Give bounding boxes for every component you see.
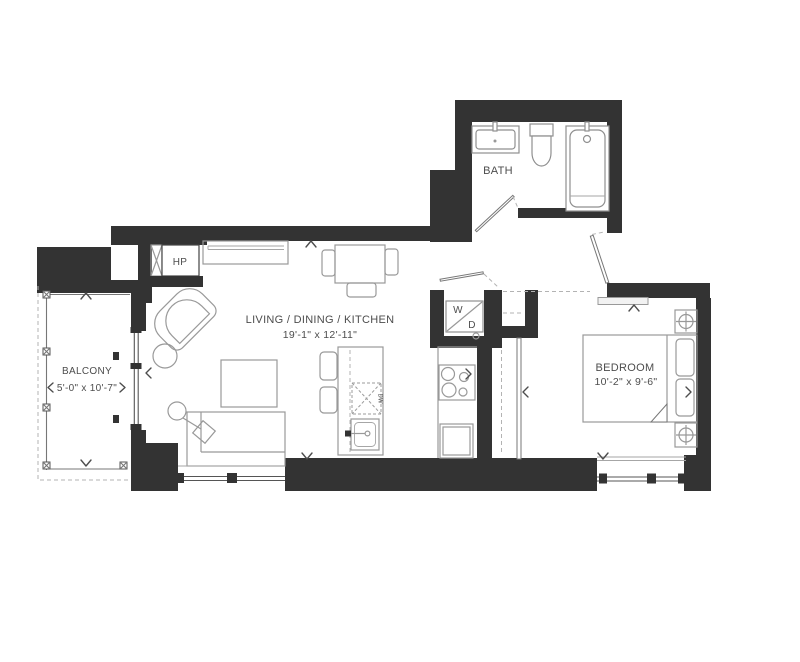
chevron-down-icon <box>598 453 608 459</box>
chevron-up-icon <box>81 293 91 299</box>
floor-lamp <box>168 402 186 420</box>
dim-arrow-right-icon <box>120 383 125 392</box>
balcony-dims: 5'-0" x 10'-7" <box>57 383 117 394</box>
tub-drain <box>584 136 591 143</box>
chevron-up-icon <box>306 241 316 247</box>
refrigerator-inner <box>443 427 470 455</box>
side-table <box>153 344 177 368</box>
bath-door <box>475 195 514 231</box>
wall-balcony-strip <box>111 280 138 293</box>
entry-door <box>590 235 609 283</box>
pillow <box>676 339 694 376</box>
kitchen <box>320 347 477 458</box>
sliding-panel <box>598 298 648 305</box>
wall-corner-southwest <box>131 443 178 491</box>
floor-plan-drawing: LIVING / DINING / KITCHEN 19'-1" x 12'-1… <box>0 0 800 662</box>
kitchen-counter <box>438 347 477 458</box>
vanity-faucet-icon <box>493 122 497 131</box>
wall-bedroom-east <box>696 298 711 491</box>
wall-kitchen-east <box>477 345 492 467</box>
wall-west-lower <box>131 430 146 444</box>
chevron-down-icon <box>81 460 91 466</box>
balcony-column-marker <box>113 352 119 360</box>
balcony-column-marker <box>113 415 119 423</box>
bed-fold-corner <box>651 404 667 422</box>
bedroom-label: BEDROOM <box>596 362 655 374</box>
wall-west-jog <box>131 293 146 331</box>
sink-faucet-icon <box>345 431 351 437</box>
living-room-dims: 19'-1" x 12'-11" <box>283 329 357 341</box>
lounge-chair <box>147 281 219 353</box>
burner <box>442 383 456 397</box>
dining-table <box>335 245 385 283</box>
refrigerator <box>440 424 473 458</box>
toilet-tank <box>530 124 553 136</box>
kitchen-island <box>338 347 383 455</box>
burner <box>442 368 455 381</box>
coffee-table <box>221 360 277 407</box>
dishwasher-label: DW <box>377 394 383 404</box>
wall-top-left <box>111 226 207 245</box>
laundry-bifold-door <box>440 272 483 281</box>
hp-label: HP <box>173 257 188 268</box>
wall-bottom-main <box>285 458 597 491</box>
vanity-drain <box>494 140 497 143</box>
balcony-label: BALCONY <box>62 366 112 377</box>
wall-bath-left-block <box>430 170 472 242</box>
walls <box>37 100 711 491</box>
media-console <box>203 241 288 264</box>
dryer-label: D <box>468 320 476 331</box>
dining-chair <box>385 249 398 275</box>
wall-hp-bottom <box>148 276 203 287</box>
dim-arrow-left-icon <box>48 383 53 392</box>
bedroom-dims: 10'-2" x 9'-6" <box>595 376 658 388</box>
pillow <box>676 379 694 416</box>
dining-chair <box>347 283 376 297</box>
burner <box>459 388 467 396</box>
wall-bedroom-top <box>607 283 710 298</box>
chevron-up-icon <box>629 305 639 311</box>
wall-bedroom-west-thin <box>517 338 521 459</box>
floor-plan: LIVING / DINING / KITCHEN 19'-1" x 12'-1… <box>0 0 800 662</box>
sofa <box>187 412 285 466</box>
wall-bath-top <box>455 100 622 122</box>
wall-closet-bottom <box>502 326 538 338</box>
bath-label: BATH <box>483 165 513 177</box>
tub-faucet-icon <box>585 122 589 131</box>
chevron-right-icon <box>686 387 691 397</box>
dining-chair <box>322 250 335 276</box>
washer-label: W <box>453 305 463 316</box>
dashed-lines <box>502 292 591 456</box>
stool <box>320 352 337 380</box>
stool <box>320 387 337 413</box>
chevron-left-icon <box>523 387 528 397</box>
toilet-bowl <box>532 136 551 166</box>
wall-balcony-corner-block <box>37 247 111 293</box>
floor-lamp-shade <box>193 421 216 444</box>
balcony-rail-posts <box>43 291 127 469</box>
chevron-left-icon <box>146 368 151 378</box>
vanity-basin <box>476 130 515 149</box>
living-room-label: LIVING / DINING / KITCHEN <box>246 314 395 326</box>
